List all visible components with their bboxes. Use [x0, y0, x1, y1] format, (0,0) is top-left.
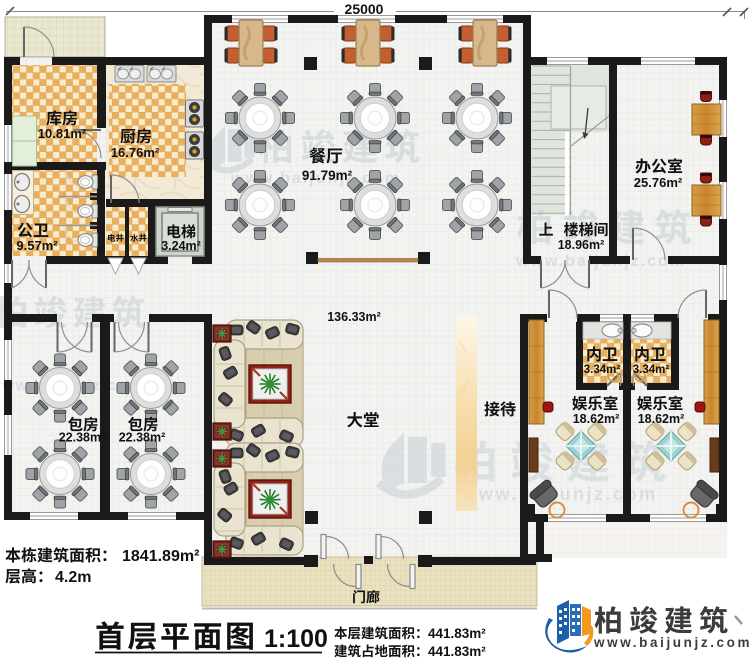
svg-text:1:100: 1:100 [264, 625, 328, 653]
svg-text:136.33m²: 136.33m² [327, 310, 381, 324]
svg-text:3.34m²: 3.34m² [633, 364, 670, 376]
svg-text:18.96m²: 18.96m² [558, 238, 605, 252]
svg-text:25.76m²: 25.76m² [634, 175, 683, 190]
svg-text:18.62m²: 18.62m² [573, 412, 620, 426]
svg-text:441.83m²: 441.83m² [428, 626, 486, 641]
svg-text:www.baijunjz.com: www.baijunjz.com [593, 635, 750, 650]
svg-text:91.79m²: 91.79m² [302, 168, 353, 183]
svg-text:25000: 25000 [345, 1, 384, 17]
svg-text:4.2m: 4.2m [55, 569, 91, 586]
svg-text:3.34m²: 3.34m² [584, 364, 621, 376]
svg-text:441.83m²: 441.83m² [428, 644, 486, 659]
svg-text:3.24m²: 3.24m² [161, 239, 201, 253]
svg-text:16.76m²: 16.76m² [111, 145, 160, 160]
svg-text:18.62m²: 18.62m² [638, 412, 685, 426]
svg-text:1841.89m²: 1841.89m² [122, 548, 199, 565]
svg-text:22.38m²: 22.38m² [59, 431, 106, 445]
svg-text:9.57m²: 9.57m² [16, 238, 58, 253]
svg-text:10.81m²: 10.81m² [38, 126, 87, 141]
svg-text:22.38m²: 22.38m² [119, 431, 166, 445]
